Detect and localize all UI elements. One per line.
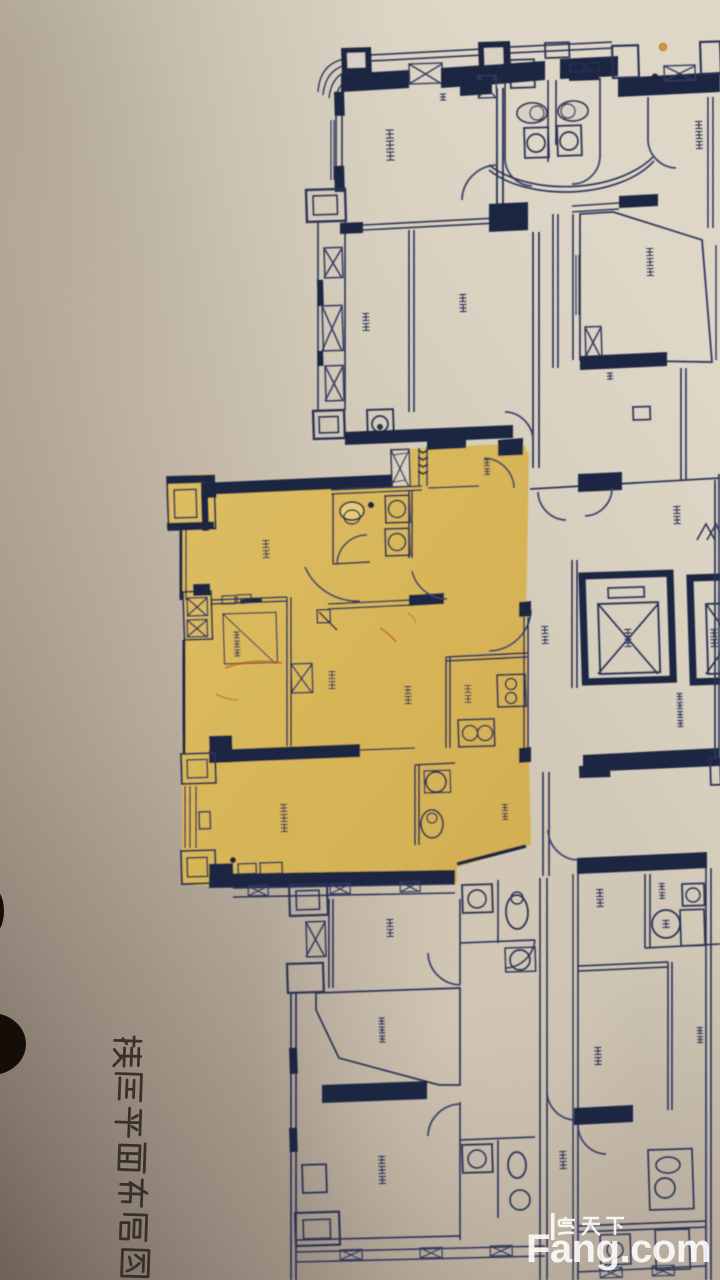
svg-text:Fang.com: Fang.com bbox=[526, 1227, 711, 1271]
